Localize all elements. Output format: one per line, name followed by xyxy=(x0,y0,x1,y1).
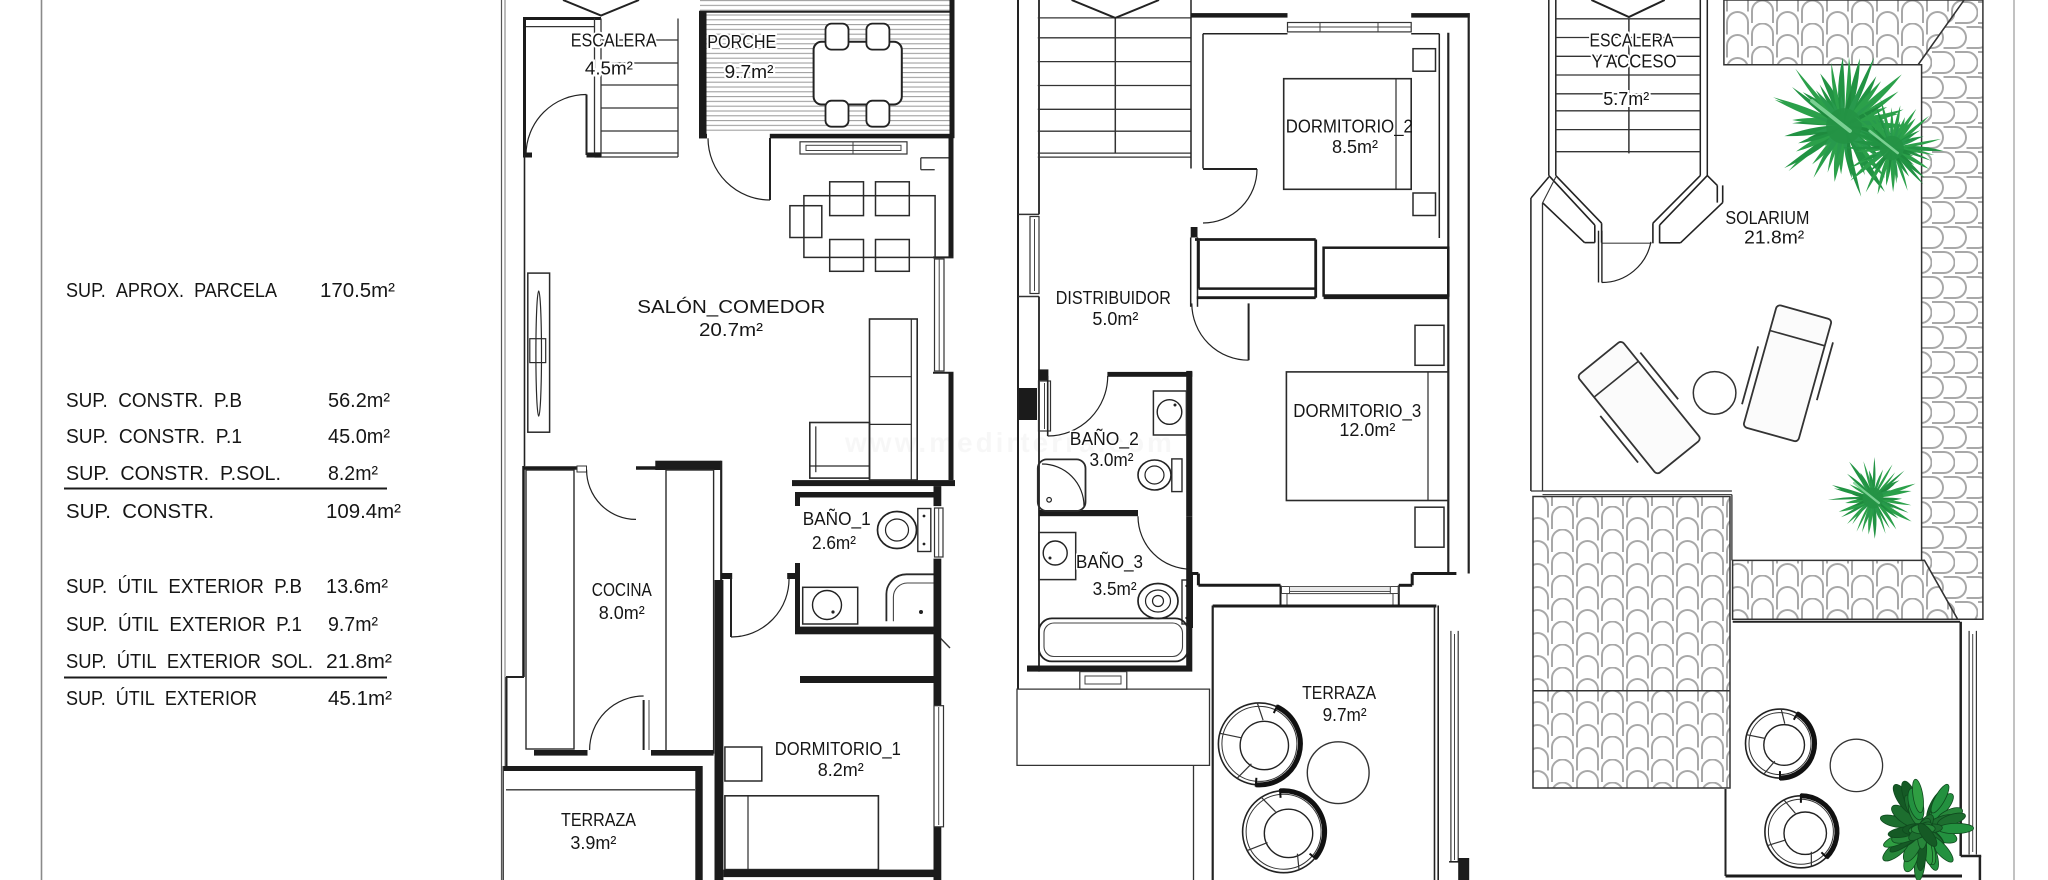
svg-text:109.4m²: 109.4m² xyxy=(326,500,401,523)
svg-text:21.8m²: 21.8m² xyxy=(1744,227,1804,248)
svg-text:20.7m²: 20.7m² xyxy=(699,319,763,340)
svg-text:45.0m²: 45.0m² xyxy=(328,425,390,448)
svg-text:TERRAZA: TERRAZA xyxy=(1302,682,1377,703)
svg-text:SALÓN_COMEDOR: SALÓN_COMEDOR xyxy=(637,296,825,318)
svg-text:12.0m²: 12.0m² xyxy=(1339,419,1395,440)
svg-text:9.7m²: 9.7m² xyxy=(328,613,378,636)
svg-text:SUP. CONSTR. P.SOL.: SUP. CONSTR. P.SOL. xyxy=(66,462,281,485)
svg-text:170.5m²: 170.5m² xyxy=(320,279,395,302)
svg-text:2.6m²: 2.6m² xyxy=(812,532,856,553)
svg-text:8.5m²: 8.5m² xyxy=(1332,136,1378,157)
svg-text:SUP. ÚTIL EXTERIOR: SUP. ÚTIL EXTERIOR xyxy=(66,687,257,710)
svg-text:4.5m²: 4.5m² xyxy=(585,58,633,79)
svg-text:45.1m²: 45.1m² xyxy=(328,687,392,710)
svg-text:SUP. CONSTR.: SUP. CONSTR. xyxy=(66,500,214,523)
svg-text:SUP. ÚTIL EXTERIOR P.B: SUP. ÚTIL EXTERIOR P.B xyxy=(66,575,302,598)
svg-text:13.6m²: 13.6m² xyxy=(326,575,388,598)
svg-text:BAÑO_3: BAÑO_3 xyxy=(1076,551,1143,573)
svg-text:COCINA: COCINA xyxy=(592,579,653,600)
svg-text:21.8m²: 21.8m² xyxy=(326,650,392,673)
svg-text:PORCHE: PORCHE xyxy=(707,31,776,52)
svg-text:Y ACCESO: Y ACCESO xyxy=(1592,51,1677,72)
svg-text:BAÑO_2: BAÑO_2 xyxy=(1070,428,1139,450)
svg-text:3.0m²: 3.0m² xyxy=(1090,449,1134,470)
svg-text:SOLARIUM: SOLARIUM xyxy=(1725,207,1809,228)
svg-text:SUP. APROX. PARCELA: SUP. APROX. PARCELA xyxy=(66,279,277,302)
svg-text:8.2m²: 8.2m² xyxy=(328,462,378,485)
svg-text:SUP. ÚTIL EXTERIOR SOL.: SUP. ÚTIL EXTERIOR SOL. xyxy=(66,650,313,673)
svg-text:56.2m²: 56.2m² xyxy=(328,389,390,412)
svg-text:DORMITORIO_2: DORMITORIO_2 xyxy=(1286,116,1413,138)
svg-text:SUP. ÚTIL EXTERIOR P.1: SUP. ÚTIL EXTERIOR P.1 xyxy=(66,613,302,636)
svg-text:ESCALERA: ESCALERA xyxy=(571,30,658,51)
svg-text:DORMITORIO_1: DORMITORIO_1 xyxy=(775,738,901,760)
svg-text:SUP. CONSTR. P.1: SUP. CONSTR. P.1 xyxy=(66,425,242,448)
svg-text:3.9m²: 3.9m² xyxy=(570,832,616,853)
svg-text:5.0m²: 5.0m² xyxy=(1092,308,1138,329)
svg-text:9.7m²: 9.7m² xyxy=(725,61,774,82)
svg-text:8.0m²: 8.0m² xyxy=(599,602,645,623)
svg-text:DISTRIBUIDOR: DISTRIBUIDOR xyxy=(1056,287,1171,308)
svg-text:9.7m²: 9.7m² xyxy=(1323,704,1367,725)
svg-text:3.5m²: 3.5m² xyxy=(1093,578,1137,599)
svg-text:ESCALERA: ESCALERA xyxy=(1590,30,1675,51)
svg-text:8.2m²: 8.2m² xyxy=(818,759,864,780)
svg-text:TERRAZA: TERRAZA xyxy=(561,809,637,830)
svg-text:BAÑO_1: BAÑO_1 xyxy=(803,508,871,530)
svg-text:5.7m²: 5.7m² xyxy=(1603,88,1649,109)
svg-text:SUP. CONSTR. P.B: SUP. CONSTR. P.B xyxy=(66,389,242,412)
